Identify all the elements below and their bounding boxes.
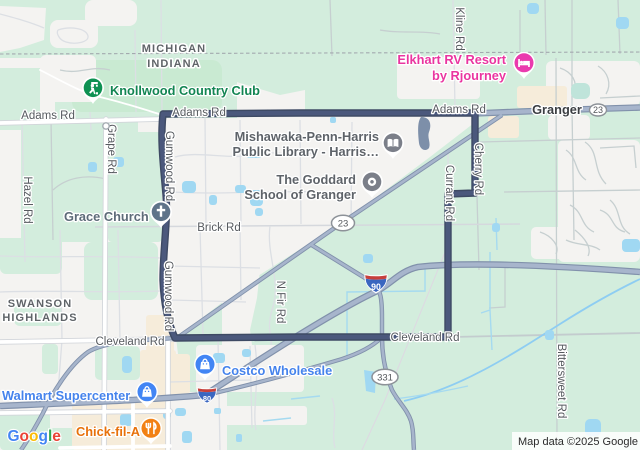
svg-text:o: o — [29, 428, 38, 445]
svg-text:Currant Rd: Currant Rd — [443, 165, 455, 221]
svg-text:Costco Wholesale: Costco Wholesale — [222, 363, 332, 378]
svg-text:School of Granger: School of Granger — [244, 187, 356, 202]
svg-text:23: 23 — [338, 218, 349, 229]
svg-text:Public Library - Harris…: Public Library - Harris… — [233, 144, 380, 159]
svg-text:INDIANA: INDIANA — [147, 58, 201, 70]
svg-text:Cherry Rd: Cherry Rd — [472, 143, 484, 195]
svg-text:G: G — [8, 428, 20, 445]
svg-text:90: 90 — [371, 282, 381, 292]
svg-text:Gumwood Rd: Gumwood Rd — [162, 261, 174, 331]
svg-text:Knollwood Country Club: Knollwood Country Club — [110, 83, 260, 98]
svg-text:Bittersweet Rd: Bittersweet Rd — [555, 344, 567, 419]
svg-text:Mishawaka-Penn-Harris: Mishawaka-Penn-Harris — [235, 129, 379, 144]
svg-text:Grape Rd: Grape Rd — [105, 124, 117, 174]
svg-text:Cleveland Rd: Cleveland Rd — [390, 332, 459, 344]
svg-text:Adams Rd: Adams Rd — [21, 110, 75, 122]
svg-text:Chick-fil-A: Chick-fil-A — [76, 424, 140, 439]
svg-text:Kline Rd: Kline Rd — [453, 7, 465, 50]
svg-text:Adams Rd: Adams Rd — [172, 107, 226, 119]
svg-text:e: e — [52, 428, 61, 445]
svg-text:23: 23 — [593, 105, 603, 115]
svg-text:Map data ©2025 Google: Map data ©2025 Google — [518, 436, 638, 448]
svg-text:Grace Church: Grace Church — [64, 209, 149, 224]
svg-text:Cleveland Rd: Cleveland Rd — [95, 336, 164, 348]
svg-text:Adams Rd: Adams Rd — [432, 104, 486, 116]
svg-text:The Goddard: The Goddard — [276, 172, 356, 187]
svg-text:Hazel Rd: Hazel Rd — [21, 176, 33, 223]
svg-text:SWANSON: SWANSON — [8, 298, 73, 310]
svg-text:MICHIGAN: MICHIGAN — [142, 43, 206, 55]
svg-text:331: 331 — [377, 372, 393, 383]
svg-text:by Rjourney: by Rjourney — [432, 68, 507, 83]
svg-text:Granger: Granger — [532, 102, 582, 117]
svg-text:Gumwood Rd: Gumwood Rd — [163, 131, 175, 201]
svg-text:o: o — [20, 428, 29, 445]
svg-text:g: g — [39, 428, 48, 445]
svg-text:Elkhart RV Resort: Elkhart RV Resort — [397, 52, 506, 67]
svg-text:HIGHLANDS: HIGHLANDS — [2, 312, 77, 324]
svg-text:Walmart Supercenter: Walmart Supercenter — [2, 388, 130, 403]
svg-text:80: 80 — [203, 394, 211, 403]
svg-text:N Fir Rd: N Fir Rd — [274, 281, 286, 324]
svg-text:Brick Rd: Brick Rd — [197, 222, 240, 234]
